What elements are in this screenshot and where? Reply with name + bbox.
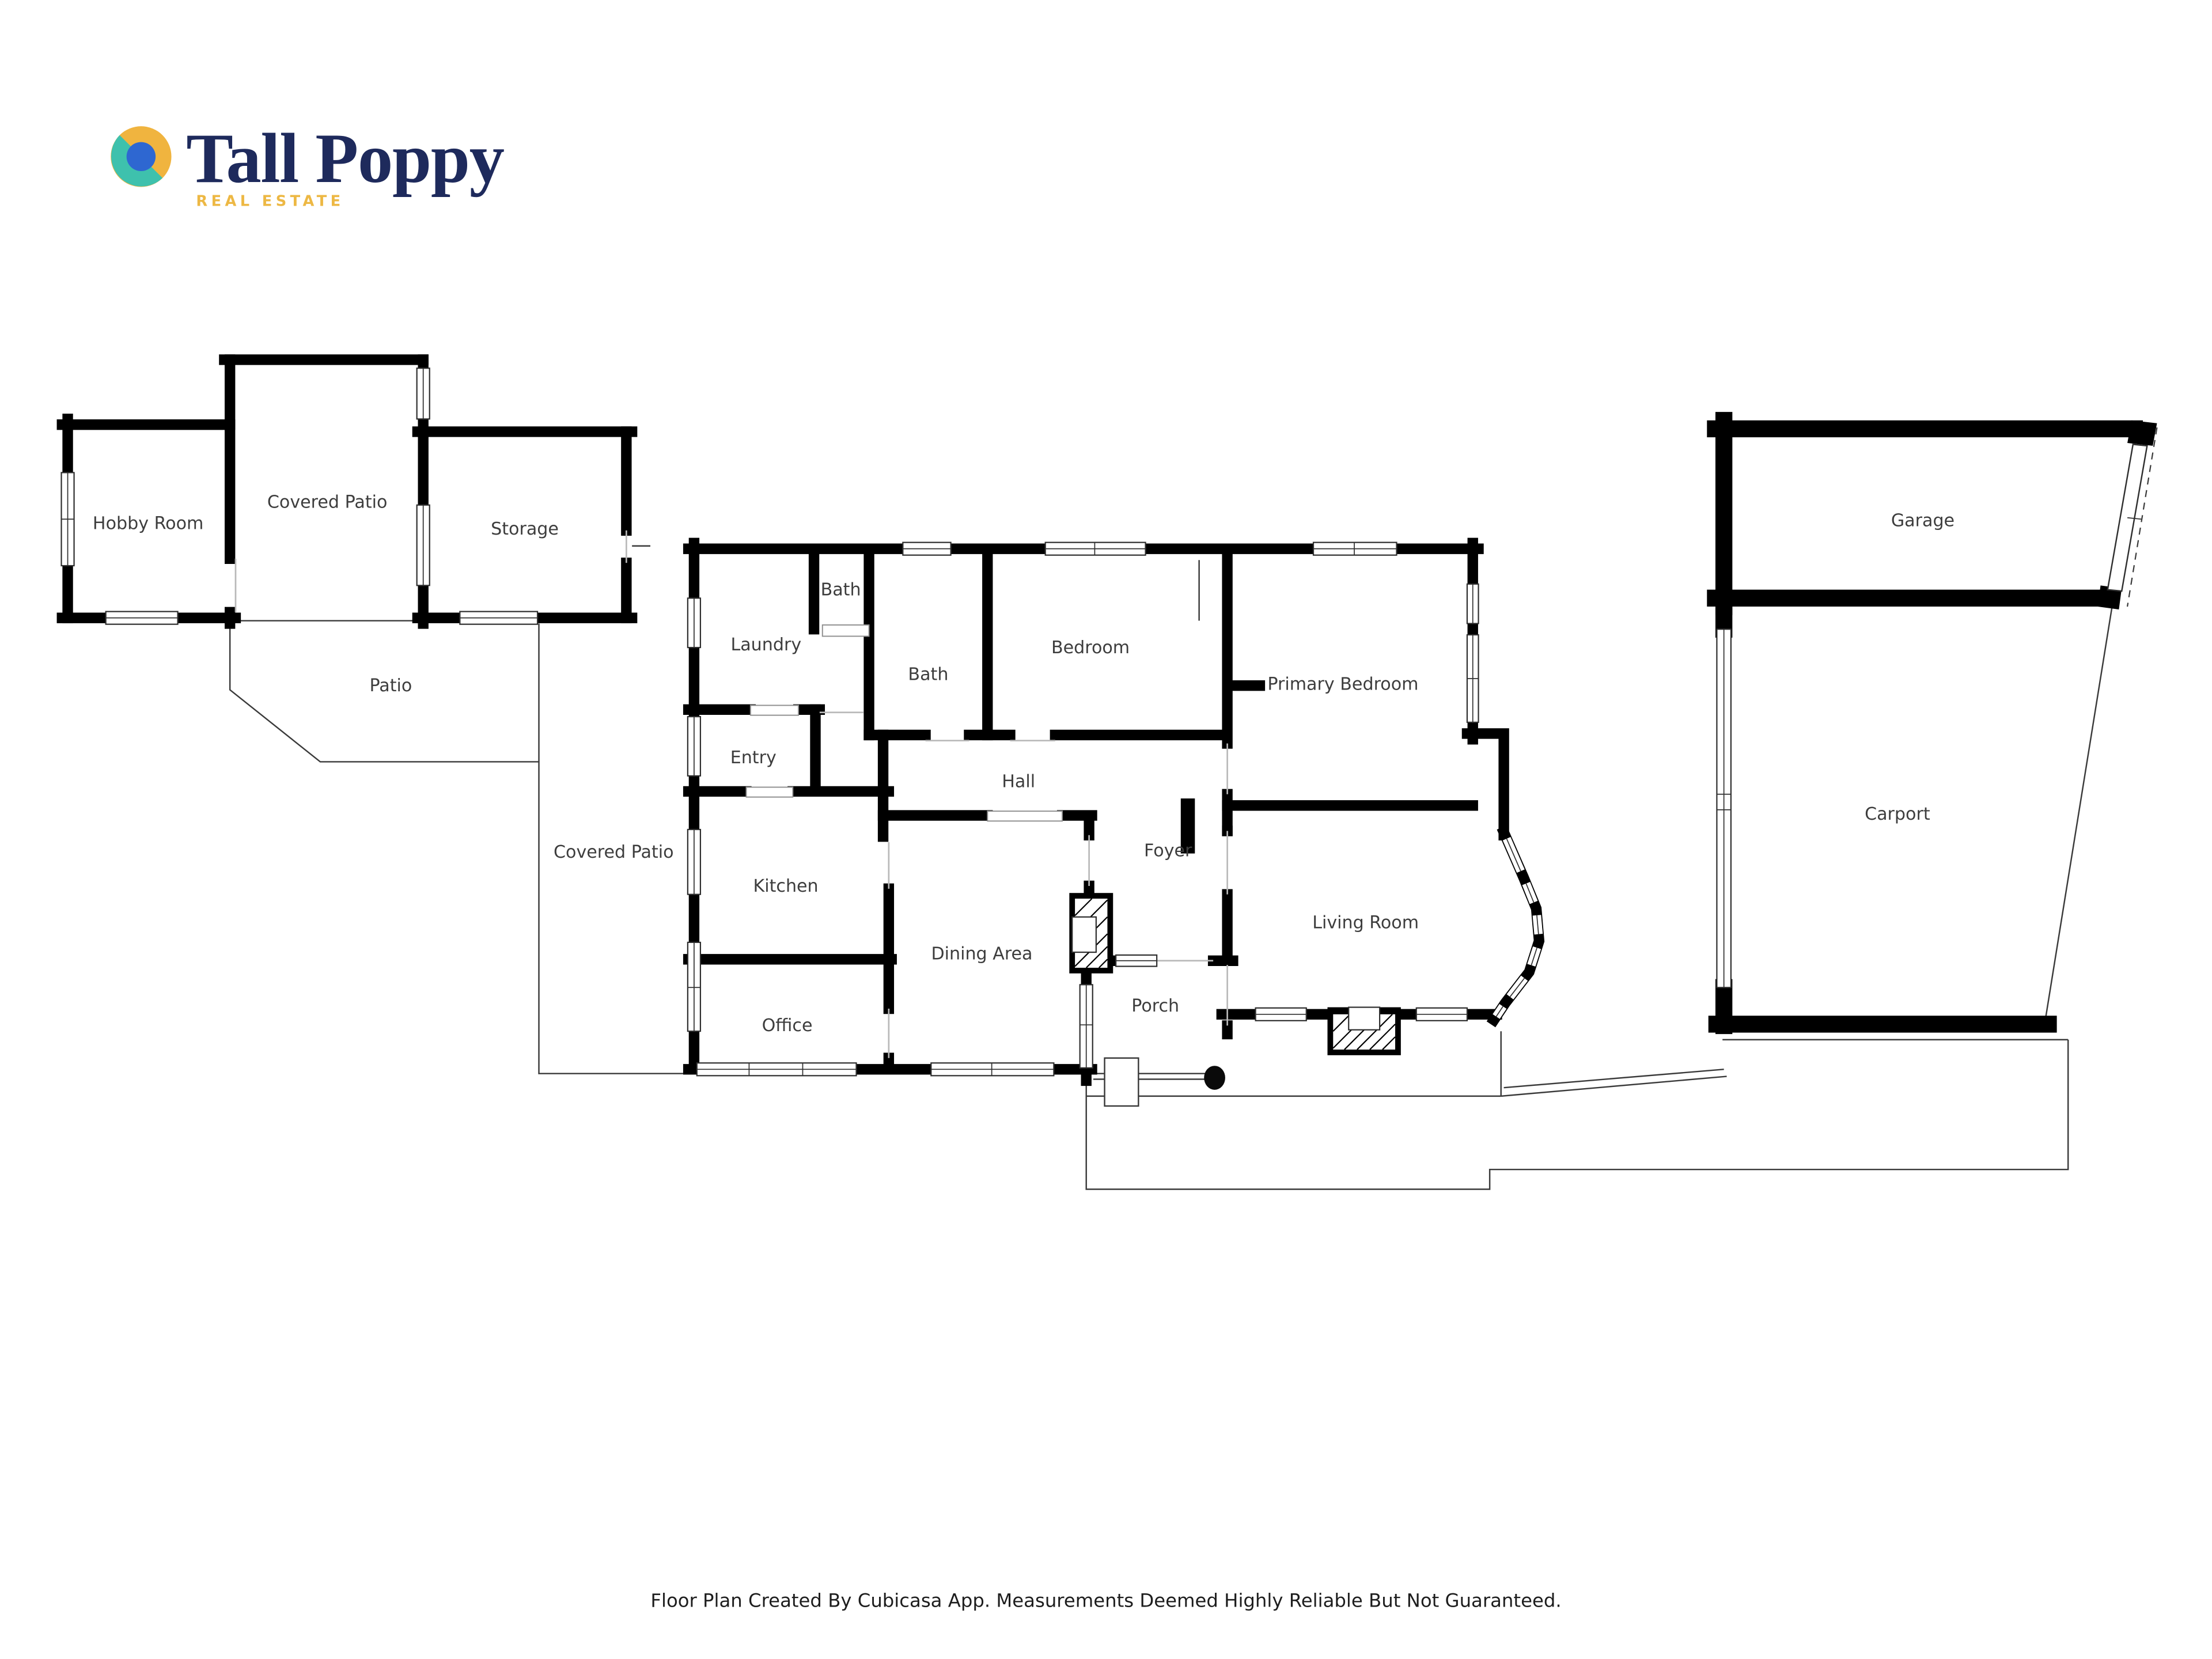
logo-icon-blue-center [127, 142, 156, 171]
room-label: Hobby Room [93, 513, 203, 533]
room-label: Bath [821, 579, 861, 600]
room-label: Living Room [1312, 912, 1419, 933]
room-label: Foyer [1144, 841, 1192, 861]
room-label: Kitchen [753, 876, 818, 896]
room-label: Storage [491, 519, 559, 539]
porch-step [1105, 1058, 1139, 1106]
room-label: Office [762, 1016, 813, 1036]
garage-door [2108, 427, 2157, 607]
outdoor-outlines [230, 546, 2112, 1190]
room-labels: Hobby RoomCovered PatioStoragePatioBathL… [93, 493, 1955, 1036]
room-label: Primary Bedroom [1267, 675, 1418, 695]
room-label: Covered Patio [267, 493, 388, 513]
room-label: Bedroom [1051, 638, 1130, 658]
room-label: Porch [1131, 996, 1179, 1016]
room-label: Carport [1865, 804, 1930, 824]
room-label: Entry [730, 748, 777, 768]
room-label: Garage [1891, 510, 1955, 531]
windows [62, 368, 1731, 1075]
logo-subtitle: REAL ESTATE [196, 193, 344, 210]
logo-title: Tall Poppy [186, 120, 504, 198]
room-label: Patio [369, 676, 412, 696]
tree-marker [1204, 1066, 1225, 1090]
room-label: Hall [1002, 772, 1035, 792]
room-label: Covered Patio [554, 842, 674, 862]
room-label: Bath [908, 664, 948, 684]
logo: Tall Poppy REAL ESTATE [111, 120, 504, 210]
floorplan-svg: Tall Poppy REAL ESTATE [0, 0, 2212, 1659]
fireplace-living [1327, 1007, 1400, 1055]
fireplace-dining [1069, 893, 1113, 974]
footer-disclaimer: Floor Plan Created By Cubicasa App. Meas… [650, 1589, 1561, 1611]
room-label: Laundry [730, 635, 801, 655]
garage-corner-stub-top [2127, 421, 2157, 446]
room-label: Dining Area [931, 944, 1032, 964]
bay-window [1494, 832, 1539, 1020]
